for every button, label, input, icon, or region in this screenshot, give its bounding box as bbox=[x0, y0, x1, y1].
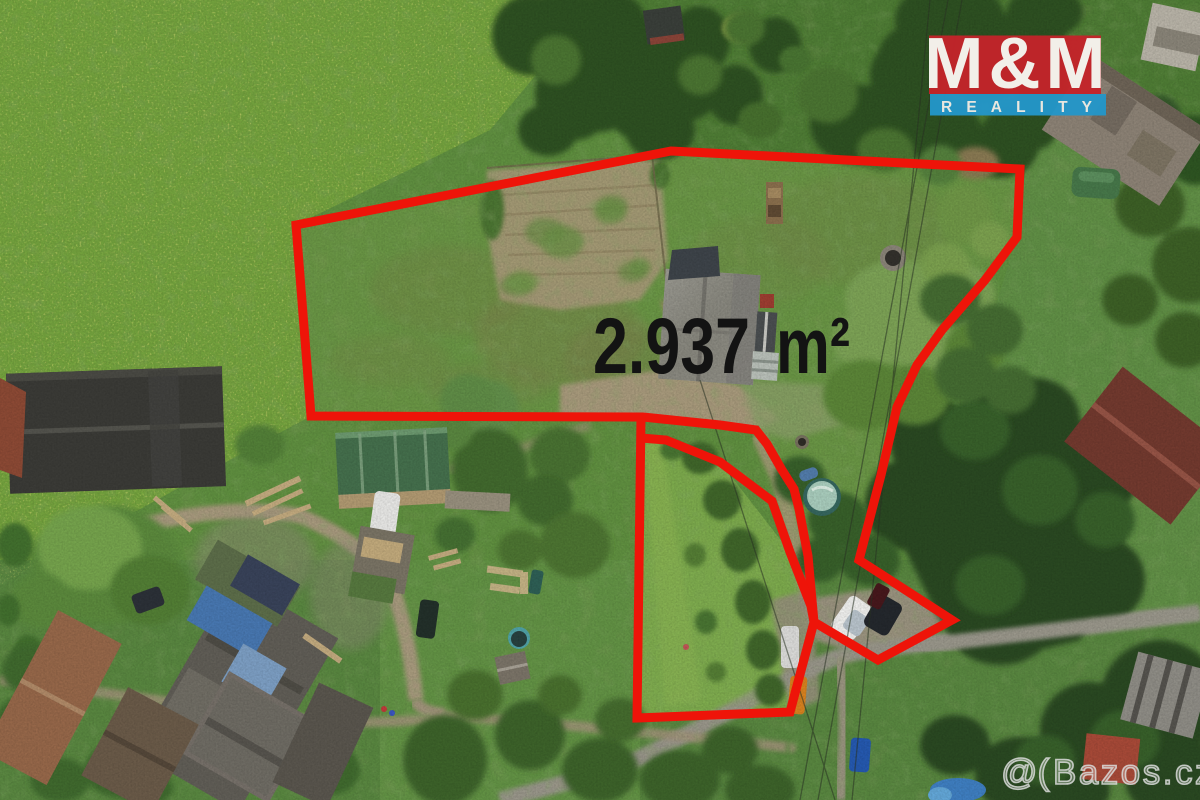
svg-text:2.937: 2.937 bbox=[593, 301, 750, 390]
svg-text:@(: @( bbox=[1001, 751, 1050, 792]
svg-text:M&M: M&M bbox=[924, 24, 1111, 104]
svg-text:Bazos.cz: Bazos.cz bbox=[1053, 753, 1200, 792]
svg-text:m²: m² bbox=[776, 301, 850, 390]
